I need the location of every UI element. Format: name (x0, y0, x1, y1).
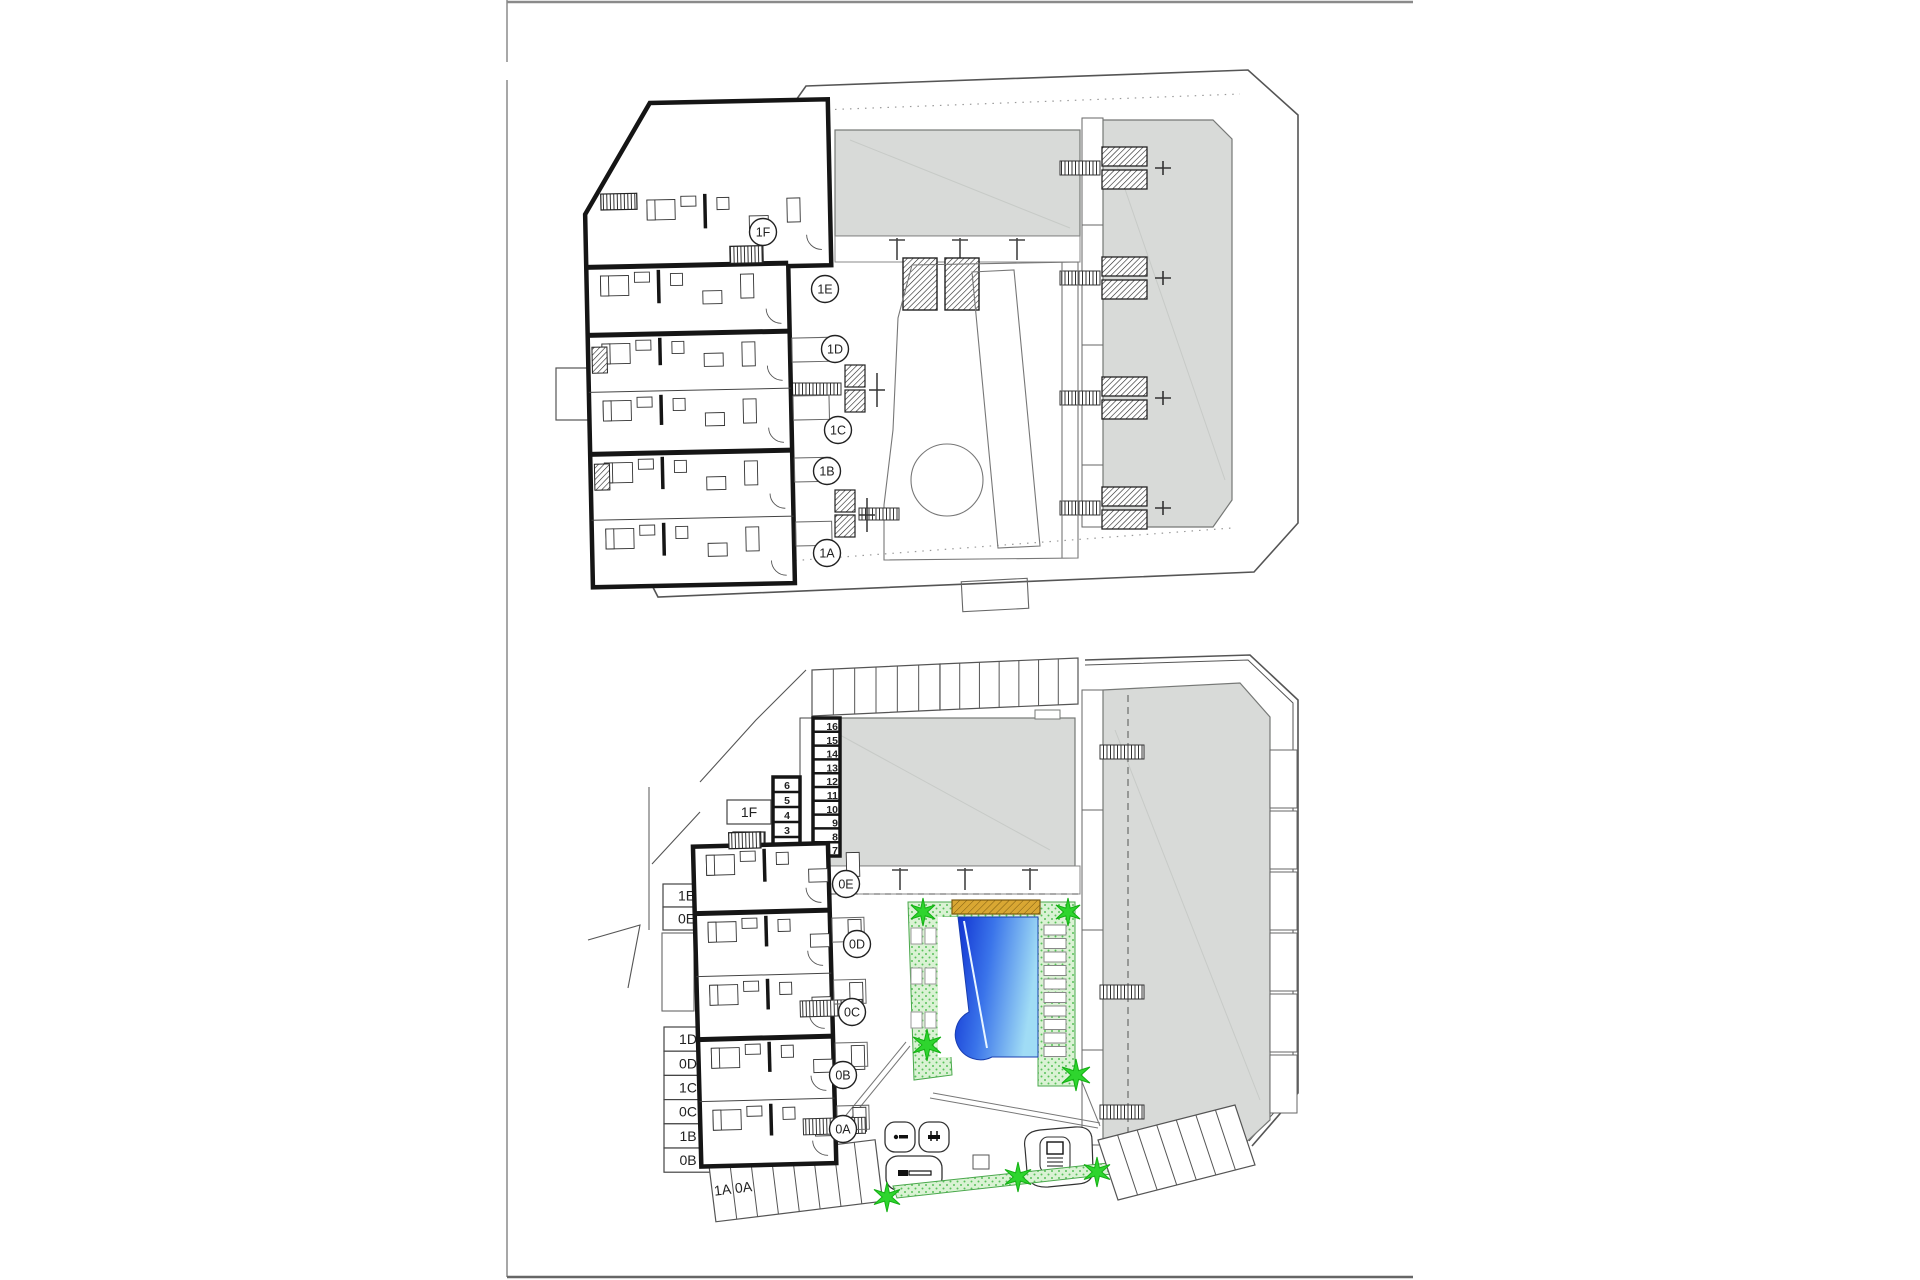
unit-circle-label: 1B (819, 465, 834, 479)
bathroom-fixture (783, 1107, 795, 1119)
walkway-step (973, 1155, 989, 1169)
bed-pillow (710, 985, 719, 1005)
lounger (925, 928, 936, 944)
stall-label: 1A (713, 1181, 733, 1199)
railing-mark (869, 373, 885, 407)
lounger (1044, 952, 1066, 962)
sofa (742, 342, 755, 366)
bed-pillow (708, 922, 717, 942)
table (707, 476, 726, 489)
table (809, 869, 828, 882)
stair-core (1102, 400, 1147, 419)
bathroom-fixture (670, 273, 682, 285)
bed-pillow (606, 529, 614, 549)
terrace-cell (1270, 872, 1297, 930)
bed-pillow (647, 200, 655, 220)
lounger (911, 1012, 922, 1028)
unit-circle-label: 1D (827, 343, 843, 357)
unit-circle-label: 1C (830, 424, 846, 438)
table (704, 353, 723, 366)
sofa (744, 461, 757, 485)
table (703, 291, 722, 304)
unit-circle-label: 0D (849, 938, 865, 952)
lounger (925, 968, 936, 984)
building-slab (818, 718, 1075, 866)
sofa (746, 527, 759, 551)
interior-wall (771, 1104, 772, 1136)
parking-row-top (812, 658, 1078, 716)
stair-ladder (859, 508, 899, 520)
closet (681, 196, 696, 206)
bed-pillow (600, 276, 608, 296)
closet (634, 272, 649, 282)
storage-block: 6543216151413121110987 (773, 718, 840, 857)
pool-courtyard (838, 900, 1100, 1128)
courtyard-ramp (972, 270, 1040, 548)
bed-pillow (603, 401, 611, 421)
wood-deck (952, 900, 1040, 914)
bed-pillow (706, 855, 715, 875)
stair-core (945, 258, 979, 310)
bathroom-fixture (672, 341, 684, 353)
railing-mark (859, 498, 875, 532)
closet (640, 525, 655, 535)
first-floor-plan: 1F1E1D1C1B1A (556, 70, 1298, 612)
sofa (787, 198, 800, 222)
interior-wall (660, 338, 661, 365)
right-building-bottom (1082, 683, 1297, 1148)
table (810, 934, 829, 947)
stair-core (1102, 510, 1147, 529)
closet (637, 397, 652, 407)
party-wall (698, 1036, 833, 1040)
stair-core (1102, 147, 1147, 166)
interior-wall (767, 979, 768, 1010)
parking-stall-band (940, 658, 1078, 710)
unit-label-text: 1B (679, 1128, 696, 1144)
interior-wall (661, 395, 662, 425)
unit-label-text: 0C (679, 1104, 697, 1120)
terrace-cell (1270, 994, 1297, 1052)
unit-circle-label: 1E (817, 283, 832, 297)
unit-label-text: 0B (679, 1152, 696, 1168)
interior-wall (658, 270, 659, 303)
party-wall (695, 910, 830, 914)
terrace-cell (1270, 933, 1297, 991)
stair-core (1102, 280, 1147, 299)
stair-core (903, 258, 937, 310)
sofa (740, 274, 753, 298)
stair-core (1102, 377, 1147, 396)
terrace-cell (1270, 750, 1297, 808)
bathroom-fixture (778, 919, 790, 931)
bathroom-fixture (673, 398, 685, 410)
right-building-top (1060, 118, 1232, 529)
lounger (1044, 939, 1066, 949)
interior-wall (662, 457, 663, 489)
stair-core (845, 390, 865, 412)
unit-circle-label: 0E (838, 878, 853, 892)
stall-label: 0A (734, 1178, 754, 1196)
lounger (1044, 1006, 1066, 1016)
unit-label-text: 1D (679, 1031, 697, 1047)
stair-core (1102, 257, 1147, 276)
unit-circle-label: 0C (844, 1006, 860, 1020)
closet (745, 1044, 760, 1054)
terrace-cell (1270, 811, 1297, 869)
closet (747, 1106, 762, 1116)
moto-icon (899, 1135, 908, 1139)
bathroom-fixture (717, 197, 729, 209)
stair-ladder (730, 246, 763, 264)
interior-wall (766, 916, 767, 947)
lounger (911, 968, 922, 984)
table (705, 413, 724, 426)
unit-circle-label: 0A (835, 1123, 851, 1137)
stair-core (1102, 487, 1147, 506)
roof-notch (1035, 710, 1060, 719)
bed-pillow (713, 1110, 722, 1130)
closet (636, 340, 651, 350)
bathroom-fixture (676, 526, 688, 538)
lounger (1044, 993, 1066, 1003)
corridor (1082, 118, 1103, 527)
table (708, 543, 727, 556)
unit-label-text: 1F (741, 804, 757, 820)
lounger (1044, 966, 1066, 976)
amenity-area (885, 1122, 1112, 1198)
interior-wall (705, 194, 706, 228)
lounger (1044, 925, 1066, 935)
bed-pillow (711, 1048, 720, 1068)
lounger (925, 1012, 936, 1028)
storage-number: 7 (832, 845, 838, 857)
storage-number: 6 (784, 780, 790, 792)
unit-circle-label: 0B (835, 1069, 850, 1083)
storage-number: 5 (784, 795, 790, 807)
center-building-top (835, 130, 1080, 310)
lounger (1044, 1033, 1066, 1043)
storage-number: 3 (784, 825, 790, 837)
sofa (743, 399, 756, 423)
stair-ladder (1060, 501, 1100, 515)
stair-ladder (1100, 1105, 1144, 1119)
apartment-block-top (583, 99, 838, 587)
bathroom-fixture (776, 852, 788, 864)
unit-label-text: 1C (679, 1080, 697, 1096)
unit-label-text: 0D (679, 1055, 697, 1071)
lounger (1044, 1047, 1066, 1057)
moto-icon (894, 1135, 898, 1139)
stair-ladder (601, 193, 637, 210)
closet (742, 918, 757, 928)
stair-core (835, 515, 855, 537)
bathroom-fixture (781, 1045, 793, 1057)
mid-stair-cores (781, 365, 899, 537)
stair-ladder (592, 347, 608, 373)
stair-core (845, 365, 865, 387)
stair-core (1102, 170, 1147, 189)
stair-core (835, 490, 855, 512)
lounger (911, 928, 922, 944)
terrace-cell (1270, 1055, 1297, 1113)
lounger (1044, 979, 1066, 989)
empty-plot-box (662, 933, 694, 1011)
courtyard-circle (911, 444, 983, 516)
storage-corridor (800, 718, 813, 856)
floor-plan-sheet: 1F1E1D1C1B1A (0, 0, 1920, 1280)
stair-ladder (1060, 161, 1100, 175)
bike-icon (928, 1135, 940, 1139)
bathroom-fixture (780, 982, 792, 994)
closet (744, 981, 759, 991)
terrace-band (830, 866, 1080, 894)
stair-ladder (1060, 391, 1100, 405)
lounger (1044, 1020, 1066, 1030)
storage-number: 4 (784, 810, 790, 822)
stair-ladder (1060, 271, 1100, 285)
stair-ladder (1100, 985, 1144, 999)
closet (740, 851, 755, 861)
entry-porch (793, 395, 829, 420)
interior-wall (664, 523, 665, 556)
unit-circle-label: 1A (819, 547, 835, 561)
stair-ladder (729, 832, 761, 849)
unit-circle-label: 1F (756, 226, 771, 240)
ground-floor-plan: 6543216151413121110987 (588, 655, 1298, 1222)
interior-wall (769, 1042, 770, 1072)
interior-wall (764, 849, 765, 882)
bathroom-fixture (674, 460, 686, 472)
closet (638, 459, 653, 469)
stair-ladder (1100, 745, 1144, 759)
car-icon (898, 1170, 908, 1176)
stair-ladder (594, 464, 610, 490)
